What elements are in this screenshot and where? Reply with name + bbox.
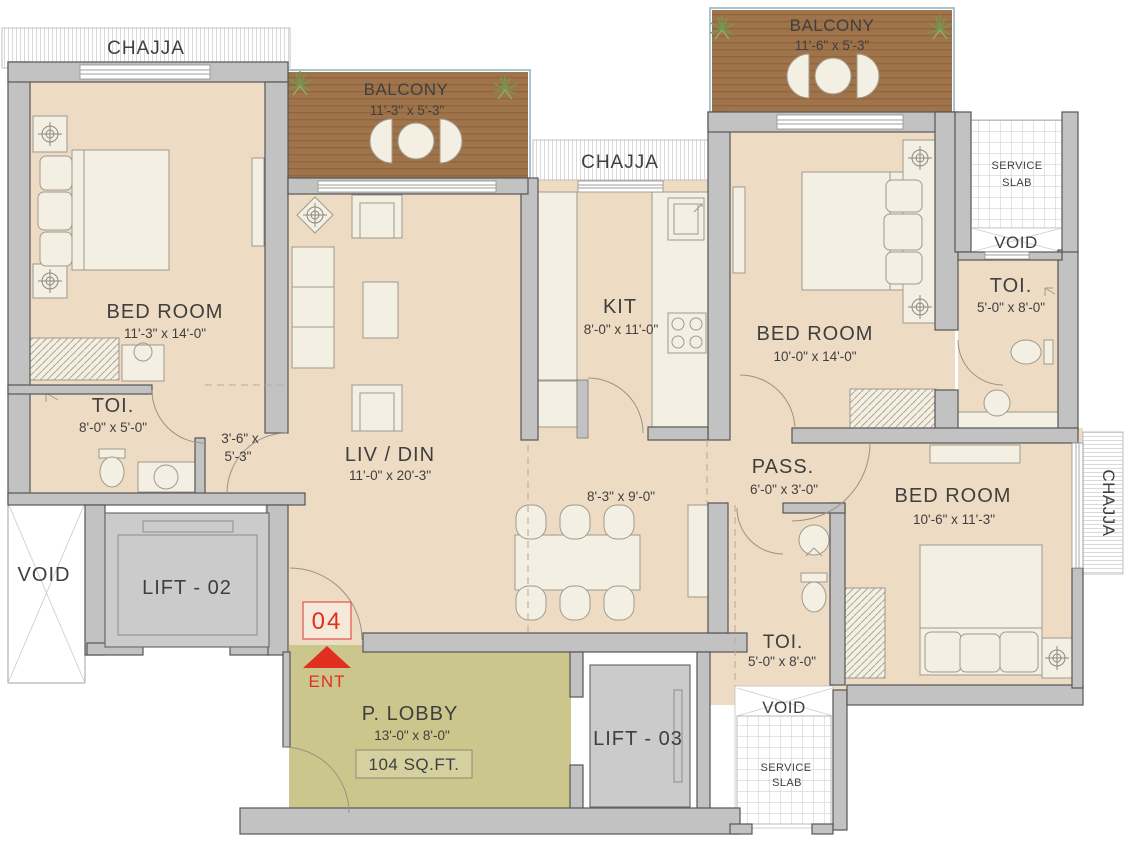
stove (668, 313, 706, 353)
toi-right-dims: 5'-0" x 8'-0" (977, 300, 1045, 315)
washbasin (984, 390, 1010, 416)
fridge (537, 381, 577, 427)
pillow (925, 632, 961, 672)
sofa (292, 247, 334, 368)
pass-dims: 6'-0" x 3'-0" (750, 482, 818, 497)
balcony-left-table (398, 123, 434, 159)
kitchen-dims: 8'-0" x 11'-0" (584, 322, 659, 337)
cabinet (688, 505, 708, 597)
chajja-mid: CHAJJA (533, 140, 708, 180)
lift-02: LIFT - 02 (105, 513, 269, 647)
service-slab-bottom: VOID SERVICE SLAB (735, 686, 833, 828)
dining-chair (560, 586, 590, 620)
chajja-mid-label: CHAJJA (581, 152, 659, 173)
chajja-right: CHAJJA (1083, 432, 1123, 574)
unit-number: 04 (312, 608, 343, 635)
pillow (40, 156, 72, 190)
dining-dims: 8'-3" x 9'-0" (587, 489, 655, 504)
toilet-bowl (100, 457, 124, 487)
balcony-right-label: BALCONY (790, 16, 875, 35)
bedroom-bottom-label: BED ROOM (895, 485, 1012, 507)
window (578, 181, 663, 192)
void-top-right-label: VOID (994, 233, 1038, 252)
livdin-label: LIV / DIN (345, 444, 435, 466)
toi-bottom-label: TOI. (763, 632, 804, 653)
balcony-right-dims: 11'-6" x 5'-3" (795, 38, 870, 53)
floor-plan-svg: CHAJJA CHAJJA CHAJJA BALCONY 11'-3" x 5'… (0, 0, 1144, 864)
window (80, 65, 210, 79)
bedroom-right-label: BED ROOM (757, 323, 874, 345)
dining-chair (516, 586, 546, 620)
bedroom-bottom-dims: 10'-6" x 11'-3" (913, 512, 995, 527)
kitchen-counter (537, 192, 577, 380)
pillow (886, 252, 922, 284)
pillow (40, 232, 72, 266)
service-slab-top-label1: SERVICE (992, 160, 1043, 172)
tv-unit (733, 187, 745, 273)
lift03-label: LIFT - 03 (593, 728, 683, 750)
toi-left-label: TOI. (92, 395, 135, 417)
toi-left-dims: 8'-0" x 5'-0" (79, 420, 147, 435)
bed (72, 150, 169, 270)
balcony-left-dims: 11'-3" x 5'-3" (370, 103, 445, 118)
console (930, 445, 1020, 463)
window (777, 115, 903, 129)
p-lobby-floor (289, 645, 571, 808)
entry-label: ENT (309, 672, 346, 691)
lift-03: LIFT - 03 (590, 665, 690, 807)
passage-dims-1: 3'-6" x (221, 431, 259, 446)
balcony-right-table (815, 58, 851, 94)
door-leaf (577, 380, 588, 438)
service-slab-bottom-label2: SLAB (772, 777, 802, 789)
toi-bottom-dims: 5'-0" x 8'-0" (748, 654, 816, 669)
balcony-right: BALCONY 11'-6" x 5'-3" (710, 8, 954, 116)
livdin-dims: 11'-0" x 20'-3" (349, 468, 431, 483)
void-bottom-right-label: VOID (762, 698, 806, 717)
dining-table (515, 535, 640, 590)
wardrobe (845, 588, 885, 678)
pass-label: PASS. (752, 456, 814, 478)
bedroom-right-dims: 10'-0" x 14'-0" (773, 349, 856, 364)
chajja-top-label: CHAJJA (107, 38, 185, 59)
kitchen-label: KIT (603, 296, 637, 318)
wardrobe (850, 389, 936, 432)
toilet-tank (801, 573, 827, 582)
chajja-right-label: CHAJJA (1099, 469, 1118, 536)
service-slab-top: SERVICE SLAB VOID (971, 120, 1062, 252)
floor-plan-canvas: CHAJJA CHAJJA CHAJJA BALCONY 11'-3" x 5'… (0, 0, 1144, 864)
void-left: VOID (8, 503, 85, 683)
lift02-label: LIFT - 02 (142, 577, 232, 599)
plobby-area: 104 SQ.FT. (369, 755, 460, 774)
dining-chair (560, 505, 590, 539)
passage-dims-2: 5'-3" (225, 449, 252, 464)
balcony-left-label: BALCONY (364, 80, 449, 99)
dresser (122, 345, 164, 381)
bedroom-left-label: BED ROOM (107, 301, 224, 323)
service-slab-top-label2: SLAB (1002, 177, 1032, 189)
plobby-label: P. LOBBY (362, 703, 459, 725)
toilet-bowl (802, 582, 826, 612)
service-slab-bottom-label1: SERVICE (761, 762, 812, 774)
wardrobe (23, 338, 119, 380)
dining-chair (604, 505, 634, 539)
toilet-tank (1044, 340, 1053, 364)
plobby-dims: 13'-0" x 8'-0" (374, 728, 450, 743)
window (318, 181, 496, 192)
tv-unit (252, 158, 264, 246)
pillow (884, 214, 922, 250)
toilet-bowl (1011, 340, 1041, 364)
void-left-label: VOID (18, 564, 71, 586)
balcony-left: BALCONY 11'-3" x 5'-3" (286, 70, 530, 182)
pillow (38, 192, 72, 230)
dining-chair (516, 505, 546, 539)
coffee-table (363, 282, 398, 338)
dining-chair (604, 586, 634, 620)
toi-right-label: TOI. (990, 275, 1033, 297)
pillow (886, 180, 922, 212)
washbasin (799, 525, 829, 555)
bedroom-left-dims: 11'-3" x 14'-0" (124, 326, 206, 341)
washbasin (154, 465, 178, 489)
window (1072, 443, 1083, 568)
pillow (960, 634, 1000, 672)
window (985, 252, 1029, 259)
pillow (1000, 632, 1038, 672)
